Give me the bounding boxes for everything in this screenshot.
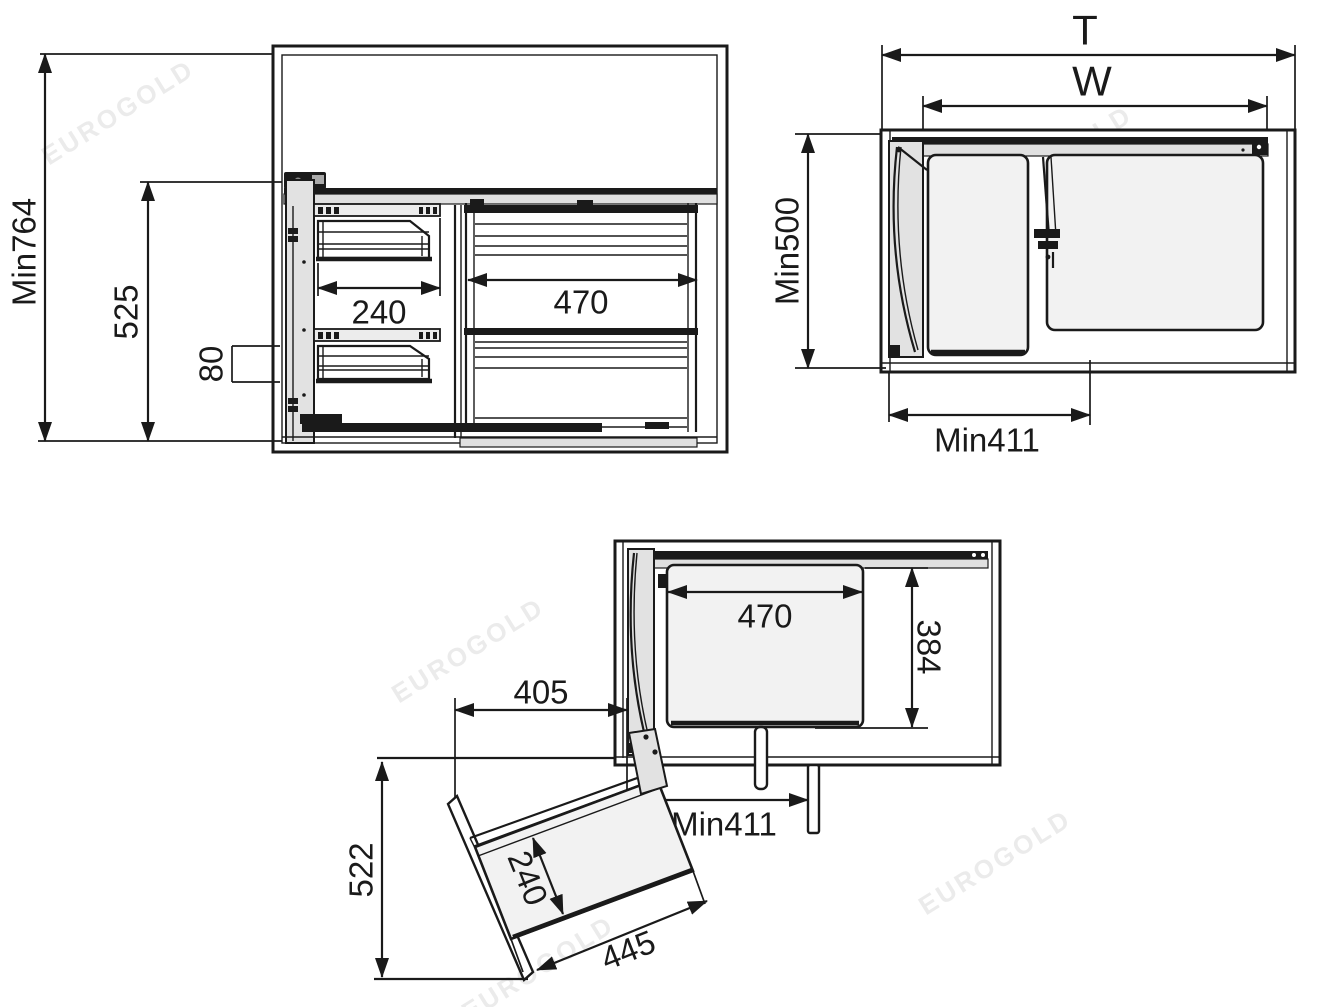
dim-label-T: T — [1072, 7, 1098, 54]
dim-label-W: W — [1072, 58, 1112, 105]
front-rail-top-view — [892, 137, 1268, 156]
dim-label-min764: Min764 — [6, 198, 43, 306]
top-view-door-open: 470 384 405 Min411 522 — [343, 541, 1001, 980]
dim-min-door-width-closed: Min411 — [889, 360, 1090, 459]
dim-label-522: 522 — [343, 842, 380, 897]
adjacent-panel-bar — [808, 765, 819, 833]
watermark: EUROGOLD — [913, 803, 1077, 921]
dim-label-470-open: 470 — [737, 598, 792, 635]
dim-min-depth: Min500 — [769, 134, 887, 368]
top-view-closed: T W — [769, 7, 1296, 459]
dim-label-525: 525 — [108, 284, 145, 339]
dim-label-min411-closed: Min411 — [934, 422, 1040, 459]
dim-carriage-height: 525 — [108, 182, 283, 441]
dim-label-240-front: 240 — [351, 294, 406, 331]
technical-drawing-page: EUROGOLD EUROGOLD EUROGOLD EUROGOLD EURO… — [0, 0, 1323, 1007]
door-closed — [889, 141, 927, 357]
dim-label-min411-open: Min411 — [671, 806, 777, 843]
dim-label-384: 384 — [911, 619, 948, 674]
main-basket-top-view — [1047, 155, 1263, 330]
dim-bracket-gap: 80 — [193, 346, 281, 383]
dim-door-offset: 405 — [455, 674, 627, 809]
dim-label-80: 80 — [193, 346, 230, 383]
door-pivot-column — [628, 549, 654, 755]
dim-label-405: 405 — [513, 674, 568, 711]
door-mount-post — [286, 180, 314, 443]
dim-label-min500: Min500 — [769, 197, 806, 305]
door-basket-top-view — [928, 155, 1028, 355]
watermark: EUROGOLD — [36, 53, 200, 171]
main-basket-open-view — [658, 565, 863, 727]
dim-label-470-front: 470 — [553, 284, 608, 321]
pullout-rod — [755, 727, 767, 789]
drawing-canvas: EUROGOLD EUROGOLD EUROGOLD EUROGOLD EURO… — [0, 0, 1323, 1007]
